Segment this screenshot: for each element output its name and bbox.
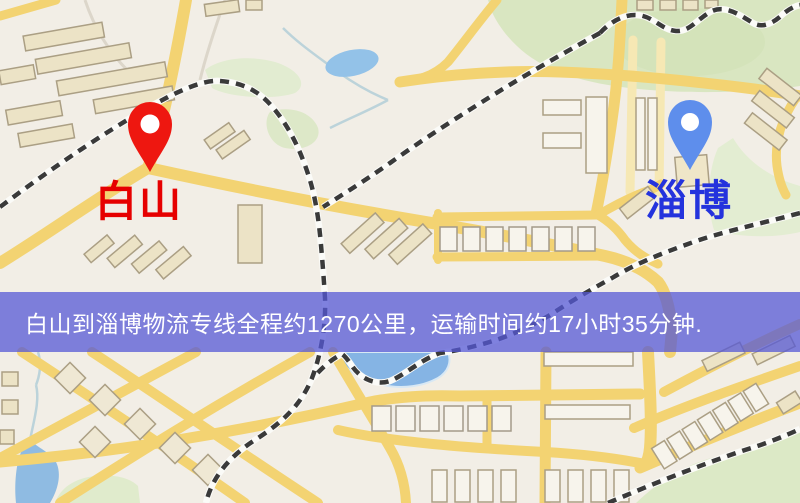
route-summary-banner: 白山到淄博物流专线全程约1270公里，运输时间约17小时35分钟.	[0, 292, 800, 352]
destination-marker[interactable]	[660, 96, 720, 172]
red-map-pin-icon	[120, 98, 180, 174]
map-screenshot: 白山 淄博 白山到淄博物流专线全程约1270公里，运输时间约17小时35分钟.	[0, 0, 800, 503]
origin-label: 白山	[95, 181, 183, 223]
origin-marker[interactable]	[120, 98, 180, 174]
blue-map-pin-icon	[660, 96, 720, 172]
destination-label: 淄博	[645, 180, 733, 222]
map-canvas	[0, 0, 800, 503]
route-summary-text: 白山到淄博物流专线全程约1270公里，运输时间约17小时35分钟.	[0, 305, 702, 339]
